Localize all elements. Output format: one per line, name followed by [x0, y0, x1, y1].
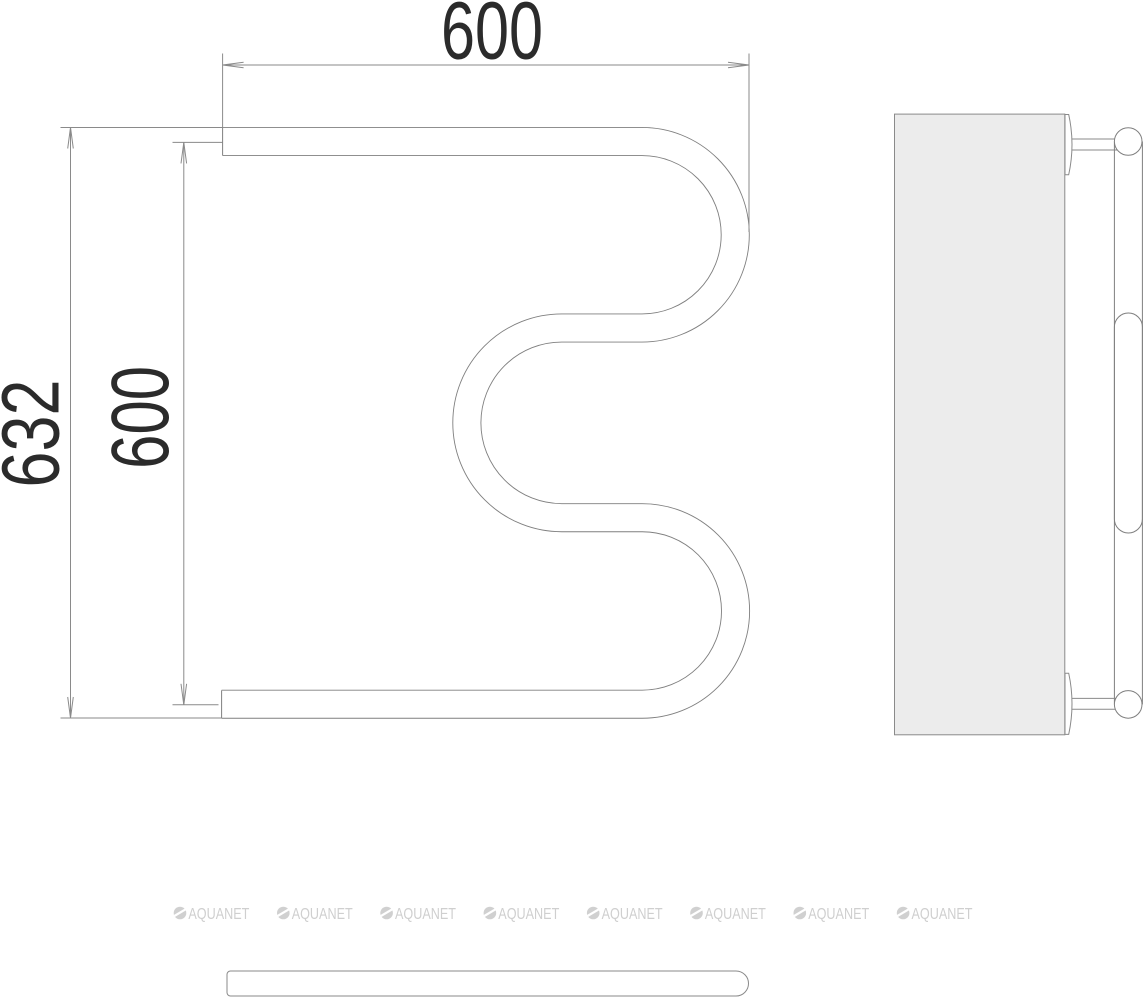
svg-text:AQUANET: AQUANET	[292, 906, 353, 923]
svg-text:600: 600	[95, 366, 186, 469]
svg-text:AQUANET: AQUANET	[705, 906, 766, 923]
svg-text:AQUANET: AQUANET	[188, 906, 249, 923]
svg-text:AQUANET: AQUANET	[808, 906, 869, 923]
svg-text:632: 632	[0, 380, 77, 488]
svg-text:AQUANET: AQUANET	[912, 906, 973, 923]
svg-text:600: 600	[441, 0, 543, 77]
svg-text:AQUANET: AQUANET	[395, 906, 456, 923]
svg-text:AQUANET: AQUANET	[602, 906, 663, 923]
svg-text:AQUANET: AQUANET	[498, 906, 559, 923]
